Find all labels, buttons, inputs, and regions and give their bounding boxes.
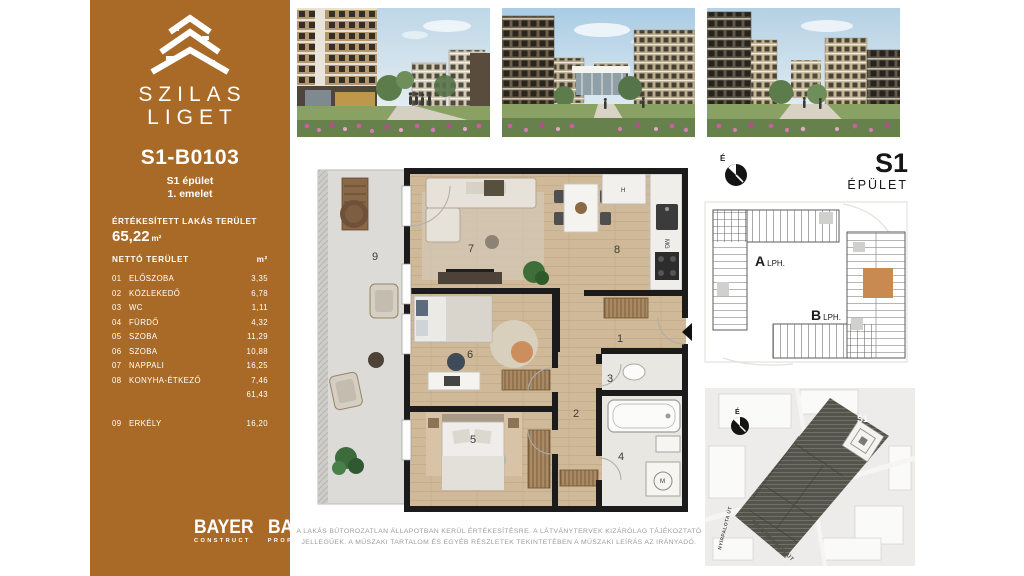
room-label-1: 1 <box>617 333 623 345</box>
stair-a-label: ALPH. <box>755 253 785 269</box>
site-map: S1 É SZENTMIHÁLYI ÚT NYÍRPALOTA ÚT <box>705 388 915 566</box>
roof-chevrons-logo-icon <box>144 10 236 82</box>
living-room-furniture <box>422 178 549 285</box>
unit-floor: 1. emelet <box>90 188 290 201</box>
bath-sink <box>656 436 680 452</box>
room-label-9: 9 <box>372 251 378 263</box>
balcony-area-row: 09 ERKÉLY 16,20 <box>112 419 268 434</box>
fridge-label: H <box>621 188 625 194</box>
area-row: 01ELŐSZOBA3,35 <box>112 274 268 289</box>
area-row: 06SZOBA10,88 <box>112 347 268 362</box>
room-label-2: 2 <box>573 408 579 420</box>
brochure-page: SZILAS LIGET S1-B0103 S1 épület 1. emele… <box>0 0 1024 576</box>
washer-label: M <box>660 479 665 485</box>
net-area-header: NETTÓ TERÜLET m² <box>112 255 268 264</box>
room-label-8: 8 <box>614 244 620 256</box>
building-word: ÉPÜLET <box>800 178 908 192</box>
net-area-unit: m² <box>257 255 268 264</box>
render-photo-2 <box>502 8 695 137</box>
area-subtotal-row: 61,43 <box>112 390 268 405</box>
area-row: 02KÖZLEKEDŐ6,78 <box>112 289 268 304</box>
north-compass-icon: É <box>714 150 754 192</box>
building-overview-plan: ALPH. BLPH. <box>703 198 910 374</box>
room-label-7: 7 <box>468 243 474 255</box>
stair-b-label: BLPH. <box>811 307 841 323</box>
sold-area-value: 65,22m² <box>112 228 161 245</box>
render-photo-3 <box>707 8 900 137</box>
area-row: 07NAPPALI16,25 <box>112 361 268 376</box>
site-map-building-tag: S1 <box>857 414 868 424</box>
brand-line1: SZILAS <box>95 84 290 107</box>
area-row: 04FÜRDŐ4,32 <box>112 318 268 333</box>
brand-line2: LIGET <box>95 107 290 130</box>
unit-subtitle: S1 épület 1. emelet <box>90 175 290 200</box>
svg-text:É: É <box>720 154 726 163</box>
disclaimer-text: A LAKÁS BÚTOROZATLAN ÁLLAPOTBAN KERÜL ÉR… <box>294 527 704 549</box>
building-title: S1 ÉPÜLET <box>800 150 908 192</box>
sold-area-label: ÉRTÉKESÍTETT LAKÁS TERÜLET <box>112 217 274 226</box>
sidebar: SZILAS LIGET S1-B0103 S1 épület 1. emele… <box>90 0 290 576</box>
net-area-label: NETTÓ TERÜLET <box>112 255 189 264</box>
unit-building: S1 épület <box>90 175 290 188</box>
building-code: S1 <box>800 150 908 177</box>
apartment-floorplan: 9 7 8 1 2 3 4 5 6 H MG M <box>316 168 696 512</box>
corridor-wardrobe <box>560 470 598 486</box>
area-row: 08KONYHA-ÉTKEZŐ7,46 <box>112 376 268 391</box>
unit-highlight <box>863 268 893 298</box>
room-label-3: 3 <box>607 373 613 385</box>
hall-wardrobe <box>604 298 648 318</box>
svg-text:É: É <box>735 407 740 416</box>
brand-name: SZILAS LIGET <box>90 84 290 129</box>
area-subtotal-value: 61,43 <box>246 390 268 399</box>
dishwasher-label: MG <box>663 239 669 249</box>
unit-id: S1-B0103 <box>90 146 290 170</box>
area-table-footer: 61,43 09 ERKÉLY 16,20 <box>112 390 268 434</box>
room-label-6: 6 <box>467 349 473 361</box>
stove <box>655 252 679 280</box>
area-table: 01ELŐSZOBA3,3502KÖZLEKEDŐ6,7803WC1,1104F… <box>112 274 268 390</box>
area-row: 03WC1,11 <box>112 303 268 318</box>
render-photo-1 <box>297 8 490 137</box>
bayer-construct-logo: BAYER CONSTRUCT <box>194 518 259 545</box>
wc-sink <box>623 364 645 380</box>
room-label-4: 4 <box>618 451 624 463</box>
area-row: 05SZOBA11,29 <box>112 332 268 347</box>
room-label-5: 5 <box>470 434 476 446</box>
